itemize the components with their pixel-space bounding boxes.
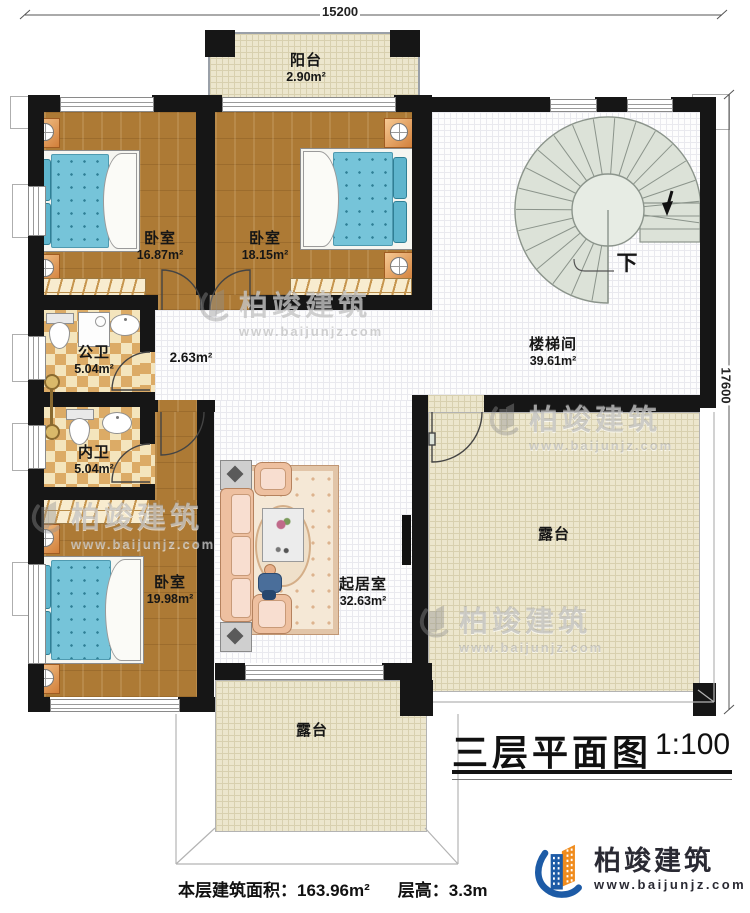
footer-stats: 本层建筑面积：163.96m²层高：3.3m [178, 876, 488, 901]
mattress [51, 154, 109, 248]
room-name: 露台 [274, 722, 350, 740]
bed [300, 148, 414, 250]
room-label-public-bath: 公卫 5.04m² [56, 344, 132, 376]
wall-segment [412, 395, 428, 680]
wall-segment [140, 310, 155, 352]
plan-scale: 1:100 [655, 728, 730, 762]
window [28, 564, 46, 664]
sofa [220, 488, 254, 622]
sink [102, 412, 132, 434]
room-area: 18.15m² [220, 248, 310, 263]
room-name: 起居室 [318, 576, 408, 594]
room-area: 32.63m² [318, 594, 408, 609]
room-area: 2.90m² [252, 70, 360, 85]
wall-segment [28, 234, 44, 336]
wall-segment [484, 395, 700, 412]
washing-machine [78, 312, 110, 347]
wall-segment [178, 697, 215, 712]
logo-brand-text: 柏竣建筑 [594, 848, 746, 875]
wardrobe [30, 497, 150, 524]
window [28, 336, 46, 380]
stair-down-label: 下 [612, 252, 642, 280]
room-name: 露台 [516, 526, 592, 544]
wall-segment [196, 95, 215, 295]
room-name: 楼梯间 [505, 336, 601, 354]
wall-segment [28, 392, 155, 407]
wall-segment [250, 295, 432, 310]
toilet-bowl [69, 418, 90, 445]
room-label-private-bath: 内卫 5.04m² [56, 444, 132, 476]
room-area: 39.61m² [505, 354, 601, 369]
wall-segment [140, 400, 158, 412]
sofa-cushion [231, 494, 251, 534]
room-area: 19.98m² [126, 592, 214, 607]
room-label-stairwell: 楼梯间 39.61m² [505, 336, 601, 368]
room-label-bedroom3: 卧室 19.98m² [126, 574, 214, 606]
nightstand [384, 118, 414, 148]
floor-plan-page: 下 [0, 0, 750, 913]
terrace-bottom-floor [215, 680, 427, 832]
room-name: 内卫 [56, 444, 132, 462]
wall-segment [197, 400, 214, 712]
sliding-door [222, 97, 396, 112]
corner-column [693, 683, 716, 716]
room-name: 卧室 [126, 574, 214, 592]
mattress [51, 560, 111, 660]
window [60, 97, 154, 112]
sofa-cushion [231, 578, 251, 618]
title-underline-thin [452, 779, 732, 780]
window [50, 699, 180, 712]
wall-segment [382, 663, 432, 680]
lamp-icon [390, 257, 408, 275]
pillow [393, 157, 407, 199]
floor-area-label: 本层建筑面积： [178, 881, 297, 900]
balcony-pillar [390, 30, 420, 57]
dimension-right: 17600 [719, 365, 734, 405]
pillow [393, 201, 407, 243]
plan-title: 三层平面图 [452, 724, 657, 776]
side-table [220, 460, 252, 490]
wall-segment [432, 97, 550, 112]
wall-segment [28, 295, 158, 310]
window [550, 99, 597, 112]
wall-segment [215, 663, 245, 680]
floor-height-label: 层高： [398, 881, 449, 900]
wall-segment [412, 95, 432, 310]
room-area: 5.04m² [56, 362, 132, 377]
toilet [66, 409, 92, 445]
logo-icon [532, 840, 588, 898]
wall-segment [28, 467, 44, 564]
sliding-door [245, 665, 384, 680]
wall-segment [700, 97, 716, 408]
armchair [254, 462, 292, 496]
room-label-hallway: 2.63m² [158, 350, 224, 366]
window [28, 186, 46, 236]
wall-segment [200, 295, 210, 310]
wall-segment [28, 95, 44, 186]
person-legs [262, 590, 276, 600]
wall-segment [28, 487, 155, 500]
company-logo: 柏竣建筑 www.baijunjz.com [532, 840, 746, 898]
room-label-balcony: 阳台 2.90m² [252, 52, 360, 84]
coffee-table [262, 508, 304, 562]
room-area: 16.87m² [116, 248, 204, 263]
room-label-bedroom1: 卧室 16.87m² [116, 230, 204, 262]
room-label-bedroom2: 卧室 18.15m² [220, 230, 310, 262]
room-name: 阳台 [252, 52, 360, 70]
sofa-cushion [231, 536, 251, 576]
corner-column [400, 680, 433, 716]
lamp-icon [390, 123, 408, 141]
window [627, 99, 673, 112]
towel-rail-end [44, 424, 60, 440]
mattress [333, 152, 393, 246]
terrace-right-floor [428, 412, 700, 692]
wall-segment [28, 697, 50, 712]
side-table [220, 622, 252, 652]
room-area: 5.04m² [56, 462, 132, 477]
dimension-top: 15200 [320, 4, 360, 19]
door-threshold [210, 295, 250, 310]
wall-segment [595, 97, 627, 112]
sink [110, 314, 140, 336]
room-label-terrace-bottom: 露台 [274, 722, 350, 740]
down-text: 下 [617, 252, 638, 275]
bed [30, 556, 144, 664]
room-label-living: 起居室 32.63m² [318, 576, 408, 608]
room-area: 2.63m² [158, 350, 224, 366]
window [28, 425, 46, 469]
title-underline [452, 770, 732, 774]
person-figure [256, 564, 284, 602]
room-name: 卧室 [220, 230, 310, 248]
room-name: 卧室 [116, 230, 204, 248]
room-label-terrace-right: 露台 [516, 526, 592, 544]
door-threshold [158, 295, 200, 310]
balcony-pillar [205, 30, 235, 57]
tv [402, 515, 411, 565]
door-threshold [428, 395, 484, 412]
room-name: 公卫 [56, 344, 132, 362]
floor-area-value: 163.96m² [297, 881, 370, 900]
logo-url-text: www.baijunjz.com [594, 878, 746, 891]
floor-height-value: 3.3m [449, 881, 488, 900]
door-threshold [140, 444, 155, 484]
door-threshold [140, 352, 155, 392]
